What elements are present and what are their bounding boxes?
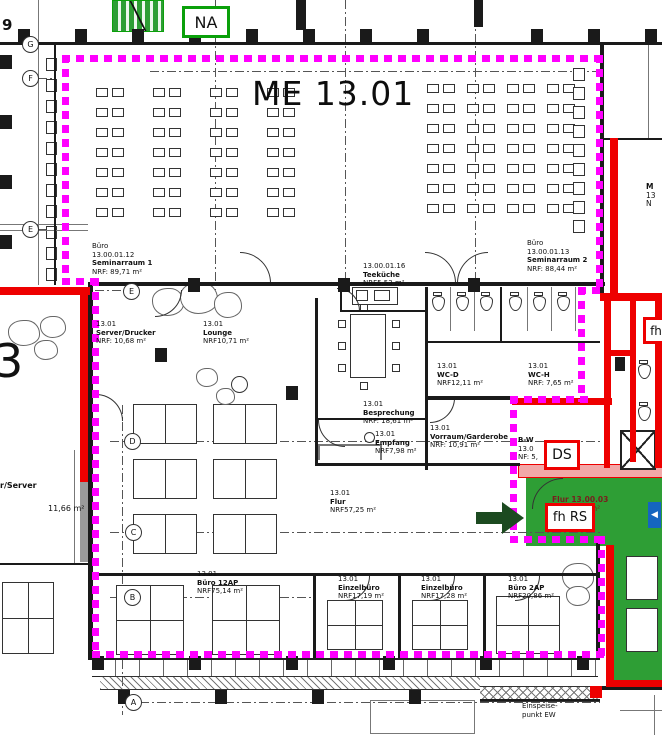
red-fire-wall bbox=[590, 686, 602, 698]
furniture-chair bbox=[443, 104, 455, 113]
window-pane bbox=[573, 144, 585, 157]
plant-icon bbox=[40, 316, 66, 338]
toilet-icon bbox=[509, 296, 522, 311]
me-boundary-segment bbox=[598, 536, 605, 658]
door-arc bbox=[430, 398, 455, 423]
thin-line bbox=[551, 287, 552, 331]
column-pier bbox=[338, 278, 350, 292]
toilet-icon bbox=[638, 364, 651, 379]
room-label-server-links: r/Server 11,66 m² bbox=[0, 482, 84, 513]
thin-line bbox=[0, 224, 88, 225]
floor-plan: ME 13.01 G F E E D C B A Büro13.00.01.12… bbox=[0, 0, 662, 735]
desk-divider bbox=[245, 405, 246, 443]
furniture-chair bbox=[210, 88, 222, 97]
furniture-chair bbox=[210, 128, 222, 137]
desk-cluster bbox=[133, 459, 197, 499]
column-pier bbox=[215, 690, 227, 704]
wall bbox=[315, 298, 318, 465]
entrance-arrow-shaft bbox=[476, 512, 504, 524]
furniture-chair bbox=[153, 108, 165, 117]
plant-icon bbox=[196, 368, 218, 387]
thin-line bbox=[654, 695, 655, 735]
blue-exit-marker: ◀ bbox=[648, 502, 661, 528]
grid-bubble-e: E bbox=[22, 221, 39, 238]
furniture-chair bbox=[483, 144, 495, 153]
furniture-chair bbox=[153, 188, 165, 197]
furniture-chair bbox=[427, 124, 439, 133]
me-boundary-segment bbox=[62, 55, 602, 62]
window-band bbox=[92, 658, 598, 677]
furniture-chair bbox=[443, 164, 455, 173]
column-pier bbox=[286, 656, 298, 670]
wall bbox=[313, 573, 316, 658]
furniture-chair bbox=[467, 84, 479, 93]
furniture-chair bbox=[523, 204, 535, 213]
round-table bbox=[231, 376, 248, 393]
grid-bubble-f: F bbox=[22, 70, 39, 87]
thin-line bbox=[0, 230, 88, 231]
furniture-chair bbox=[210, 108, 222, 117]
furniture-chair bbox=[112, 108, 124, 117]
wall bbox=[315, 463, 520, 466]
thin-line bbox=[318, 444, 382, 446]
furniture-chair bbox=[467, 104, 479, 113]
desk-cluster bbox=[213, 514, 277, 554]
furniture-chair bbox=[483, 124, 495, 133]
door-arc bbox=[318, 420, 345, 447]
column-pier bbox=[409, 690, 421, 704]
thin-line bbox=[648, 30, 649, 138]
desk-cluster bbox=[133, 404, 197, 444]
door-arc bbox=[240, 252, 271, 283]
column-pier bbox=[303, 29, 315, 43]
column-pier bbox=[0, 235, 12, 249]
window-pane bbox=[573, 87, 585, 100]
room-label-seminarraum-1: Büro13.00.01.12 Seminarraum 1NRF: 89,71 … bbox=[92, 242, 152, 276]
furniture-chair bbox=[96, 128, 108, 137]
red-fire-wall bbox=[610, 138, 618, 298]
label-right-edge-partial: M 13 N bbox=[646, 183, 656, 209]
plant-icon bbox=[34, 340, 58, 360]
furniture-chair bbox=[338, 364, 346, 372]
desk-divider bbox=[165, 405, 166, 443]
desk-cluster bbox=[626, 608, 658, 652]
desk-cluster bbox=[496, 596, 560, 654]
furniture-chair bbox=[483, 84, 495, 93]
furniture-chair bbox=[427, 184, 439, 193]
entrance-arrow-icon bbox=[502, 502, 524, 534]
furniture-chair bbox=[226, 168, 238, 177]
desk-cluster bbox=[133, 514, 197, 554]
room-label-lounge: 13.01Lounge NRF10,71 m² bbox=[203, 320, 249, 346]
furniture-chair bbox=[443, 84, 455, 93]
column-pier bbox=[75, 29, 87, 43]
furniture-chair bbox=[427, 84, 439, 93]
column-pier bbox=[645, 29, 657, 43]
furniture-chair bbox=[547, 204, 559, 213]
furniture-chair bbox=[547, 164, 559, 173]
furniture-chair bbox=[96, 168, 108, 177]
grid-bubble-d: D bbox=[124, 433, 141, 450]
red-fire-wall bbox=[80, 287, 88, 482]
column-pier bbox=[417, 29, 429, 43]
furniture-chair bbox=[443, 144, 455, 153]
furniture-chair bbox=[210, 208, 222, 217]
desk-cluster bbox=[327, 600, 383, 650]
furniture-chair bbox=[169, 108, 181, 117]
furniture-chair bbox=[283, 188, 295, 197]
furniture-chair bbox=[547, 84, 559, 93]
grid-bubble-e2: E bbox=[123, 283, 140, 300]
furniture-chair bbox=[96, 148, 108, 157]
furniture-chair bbox=[483, 204, 495, 213]
window-pane bbox=[573, 182, 585, 195]
plant-icon bbox=[216, 388, 235, 405]
red-fire-wall bbox=[604, 398, 610, 468]
furniture-chair bbox=[169, 188, 181, 197]
room-label-empfang: 13.01Empfang NRF7,98 m² bbox=[375, 430, 417, 456]
thin-line bbox=[620, 710, 662, 711]
furniture-chair bbox=[523, 164, 535, 173]
window-pane bbox=[573, 106, 585, 119]
grid-bubble-b: B bbox=[124, 589, 141, 606]
fh-rs-marker-box: fh RS bbox=[545, 503, 595, 532]
furniture-chair bbox=[392, 342, 400, 350]
furniture-chair bbox=[427, 104, 439, 113]
wall bbox=[425, 341, 600, 343]
partial-grid-number: 9 bbox=[2, 16, 12, 34]
stove-icon bbox=[374, 290, 390, 301]
furniture-chair bbox=[153, 168, 165, 177]
window-pane bbox=[573, 163, 585, 176]
column-pier bbox=[360, 29, 372, 43]
column-pier bbox=[588, 29, 600, 43]
desk-cluster bbox=[626, 556, 658, 600]
meeting-table bbox=[350, 314, 386, 378]
room-label-wc-d: 13.01WC-D NRF12,11 m² bbox=[437, 362, 483, 388]
plant-icon bbox=[566, 586, 590, 606]
furniture-chair bbox=[96, 88, 108, 97]
furniture-chair bbox=[507, 144, 519, 153]
door-arc bbox=[425, 252, 456, 283]
desk-cluster bbox=[2, 582, 54, 654]
red-fire-wall bbox=[604, 298, 611, 403]
desk-divider bbox=[165, 515, 166, 553]
me-boundary-segment bbox=[596, 55, 603, 292]
furniture-chair bbox=[547, 124, 559, 133]
furniture-chair bbox=[547, 104, 559, 113]
me-boundary-segment bbox=[92, 651, 605, 658]
furniture-chair bbox=[467, 124, 479, 133]
furniture-chair bbox=[267, 168, 279, 177]
furniture-chair bbox=[153, 128, 165, 137]
window-pane bbox=[573, 201, 585, 214]
furniture-chair bbox=[153, 88, 165, 97]
furniture-chair bbox=[267, 128, 279, 137]
room-label-teekueche: 13.00.01.16Teeküche NRF5,53 m² bbox=[363, 262, 405, 288]
furniture-chair bbox=[523, 104, 535, 113]
thin-line bbox=[370, 733, 475, 734]
column-pier bbox=[0, 175, 12, 189]
furniture-chair bbox=[210, 148, 222, 157]
desk-divider bbox=[117, 620, 183, 621]
room-label-vorraum-garderobe: 13.01Vorraum/Garderobe NRF: 10,91 m² bbox=[430, 424, 508, 450]
toilet-icon bbox=[533, 296, 546, 311]
furniture-chair bbox=[483, 164, 495, 173]
room-label-server-drucker: 13.01Server/Drucker NRF: 10,68 m² bbox=[96, 320, 156, 346]
furniture-chair bbox=[427, 164, 439, 173]
furniture-chair bbox=[507, 204, 519, 213]
thin-line bbox=[318, 444, 320, 460]
desk-divider bbox=[3, 618, 53, 619]
toilet-icon bbox=[638, 406, 651, 421]
desk-cluster bbox=[412, 600, 468, 650]
furniture-chair bbox=[226, 88, 238, 97]
furniture-chair bbox=[338, 342, 346, 350]
furniture-chair bbox=[483, 104, 495, 113]
window-pane bbox=[573, 68, 585, 81]
column-pier bbox=[468, 278, 480, 292]
furniture-chair bbox=[443, 124, 455, 133]
column-pier bbox=[189, 656, 201, 670]
red-fire-wall bbox=[630, 298, 636, 462]
furniture-chair bbox=[153, 148, 165, 157]
plant-icon bbox=[214, 292, 242, 318]
column-pier bbox=[286, 386, 298, 400]
furniture-chair bbox=[169, 88, 181, 97]
wall bbox=[615, 357, 625, 371]
desk-divider bbox=[413, 625, 467, 626]
wall bbox=[0, 563, 92, 565]
thin-line bbox=[527, 287, 528, 331]
door-arc bbox=[96, 394, 123, 421]
furniture-chair bbox=[483, 184, 495, 193]
furniture-chair bbox=[226, 188, 238, 197]
furniture-chair bbox=[467, 144, 479, 153]
wall bbox=[398, 573, 401, 658]
room-label-seminarraum-2: Büro13.00.01.13 Seminarraum 2NRF: 88,44 … bbox=[527, 239, 587, 273]
furniture-chair bbox=[523, 184, 535, 193]
furniture-chair bbox=[283, 208, 295, 217]
desk-divider bbox=[245, 515, 246, 553]
furniture-chair bbox=[283, 148, 295, 157]
furniture-chair bbox=[169, 148, 181, 157]
furniture-chair bbox=[112, 208, 124, 217]
toilet-icon bbox=[432, 296, 445, 311]
furniture-chair bbox=[547, 184, 559, 193]
furniture-chair bbox=[392, 364, 400, 372]
furniture-chair bbox=[507, 124, 519, 133]
desk-cluster bbox=[212, 585, 280, 655]
shaft-x-icon bbox=[620, 430, 656, 470]
furniture-chair bbox=[153, 208, 165, 217]
furniture-chair bbox=[427, 144, 439, 153]
furniture-chair bbox=[226, 208, 238, 217]
red-fire-wall bbox=[606, 545, 614, 685]
column-pier bbox=[92, 656, 104, 670]
furniture-chair bbox=[467, 164, 479, 173]
furniture-chair bbox=[467, 204, 479, 213]
desk-divider bbox=[165, 460, 166, 498]
room-label-wc-h: 13.01WC-H NRF: 7,65 m² bbox=[528, 362, 574, 388]
label-einspeisepunkt: Einspeise-punkt EW bbox=[522, 702, 558, 719]
hatched-wall bbox=[100, 676, 480, 690]
furniture-chair bbox=[523, 124, 535, 133]
wall bbox=[474, 0, 483, 27]
room-label-bw: B-W13.0 NF: 5, bbox=[518, 436, 538, 462]
grid-bubble-c: C bbox=[125, 524, 142, 541]
furniture-chair bbox=[210, 168, 222, 177]
thin-line bbox=[575, 287, 576, 331]
wall bbox=[54, 42, 56, 285]
grid-bubble-a: A bbox=[125, 694, 142, 711]
furniture-chair bbox=[283, 168, 295, 177]
furniture-chair bbox=[226, 148, 238, 157]
thin-line bbox=[370, 700, 371, 734]
furniture-chair bbox=[112, 188, 124, 197]
fh-marker-box: fh bbox=[643, 317, 662, 344]
furniture-chair bbox=[226, 128, 238, 137]
room-label-flur: 13.01Flur NRF57,25 m² bbox=[330, 489, 376, 515]
desk-divider bbox=[213, 620, 279, 621]
column-pier bbox=[577, 656, 589, 670]
furniture-chair bbox=[283, 128, 295, 137]
column-pier bbox=[383, 656, 395, 670]
toilet-icon bbox=[456, 296, 469, 311]
furniture-chair bbox=[112, 148, 124, 157]
furniture-chair bbox=[392, 320, 400, 328]
desk-cluster bbox=[213, 459, 277, 499]
furniture-chair bbox=[427, 204, 439, 213]
thin-line bbox=[370, 700, 475, 701]
desk-divider bbox=[328, 625, 382, 626]
furniture-chair bbox=[507, 104, 519, 113]
furniture-chair bbox=[267, 188, 279, 197]
window-pane bbox=[573, 220, 585, 233]
column-pier bbox=[0, 115, 12, 129]
furniture-chair bbox=[507, 84, 519, 93]
thin-line bbox=[474, 287, 475, 331]
toilet-icon bbox=[480, 296, 493, 311]
partial-room-number: 3 bbox=[0, 334, 23, 388]
room-label-einzelbuero-1: 13.01Einzelbüro NRF17,19 m² bbox=[338, 575, 384, 601]
wall bbox=[425, 396, 515, 400]
furniture-chair bbox=[169, 168, 181, 177]
me-boundary-segment bbox=[510, 536, 605, 543]
desk-divider bbox=[497, 625, 559, 626]
desk-cluster bbox=[213, 404, 277, 444]
round-table bbox=[364, 432, 375, 443]
column-pier bbox=[480, 656, 492, 670]
furniture-chair bbox=[267, 148, 279, 157]
furniture-chair bbox=[112, 128, 124, 137]
furniture-chair bbox=[443, 184, 455, 193]
column-pier bbox=[531, 29, 543, 43]
desk-divider bbox=[245, 460, 246, 498]
furniture-chair bbox=[267, 208, 279, 217]
ds-marker-box: DS bbox=[544, 440, 580, 470]
me-boundary-segment bbox=[578, 287, 585, 402]
wall bbox=[296, 0, 306, 30]
furniture-chair bbox=[523, 144, 535, 153]
column-pier bbox=[0, 55, 12, 69]
wall bbox=[425, 287, 428, 470]
wall bbox=[483, 573, 486, 658]
furniture-chair bbox=[112, 168, 124, 177]
column-pier bbox=[312, 690, 324, 704]
furniture-chair bbox=[112, 88, 124, 97]
furniture-chair bbox=[210, 188, 222, 197]
toilet-icon bbox=[557, 296, 570, 311]
me-boundary-segment bbox=[62, 55, 69, 285]
sink-icon bbox=[356, 290, 368, 301]
furniture-chair bbox=[443, 204, 455, 213]
furniture-chair bbox=[96, 188, 108, 197]
red-fire-wall bbox=[0, 287, 90, 295]
stair-hatch bbox=[112, 0, 164, 32]
red-fire-wall bbox=[610, 350, 636, 356]
furniture-chair bbox=[338, 320, 346, 328]
column-pier bbox=[155, 348, 167, 362]
thin-line bbox=[474, 700, 475, 734]
furniture-chair bbox=[507, 184, 519, 193]
furniture-chair bbox=[360, 382, 368, 390]
wall bbox=[480, 699, 600, 701]
room-label-besprechung: 13.01Besprechung NRF: 18,61 m² bbox=[363, 400, 415, 426]
area-title: ME 13.01 bbox=[252, 74, 414, 113]
furniture-chair bbox=[467, 184, 479, 193]
column-pier bbox=[132, 29, 144, 43]
furniture-chair bbox=[226, 108, 238, 117]
room-label-buero-2ap: 13.01Büro 2AP NRF20,86 m² bbox=[508, 575, 554, 601]
furniture-chair bbox=[169, 128, 181, 137]
room-label-einzelbuero-2: 13.01Einzelbüro NRF17,28 m² bbox=[421, 575, 467, 601]
wall bbox=[500, 287, 502, 343]
column-pier bbox=[188, 278, 200, 292]
room-label-buero-12ap: 13.01Büro 12AP NRF75,14 m² bbox=[197, 570, 243, 596]
furniture-chair bbox=[96, 208, 108, 217]
na-marker-box: NA bbox=[182, 6, 230, 38]
grid-line bbox=[150, 71, 600, 72]
furniture-chair bbox=[169, 208, 181, 217]
furniture-chair bbox=[96, 108, 108, 117]
thin-line bbox=[450, 287, 451, 331]
red-fire-wall bbox=[606, 680, 662, 687]
furniture-chair bbox=[523, 84, 535, 93]
window-pane bbox=[573, 125, 585, 138]
column-pier bbox=[246, 29, 258, 43]
furniture-chair bbox=[507, 164, 519, 173]
wall bbox=[0, 42, 662, 45]
wall bbox=[340, 310, 425, 312]
furniture-chair bbox=[547, 144, 559, 153]
grid-bubble-g: G bbox=[22, 36, 39, 53]
